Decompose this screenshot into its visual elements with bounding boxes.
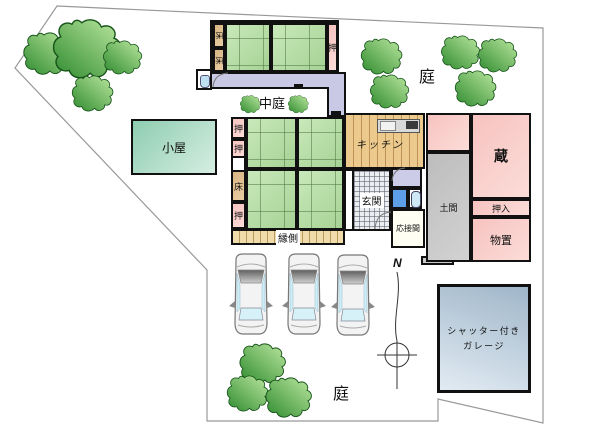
garage: シャッター付き ガレージ xyxy=(437,284,531,393)
tree-icon xyxy=(361,39,402,74)
annex-toko-cell: 床 xyxy=(213,48,225,72)
annex-closet-cell: 押 xyxy=(327,23,338,72)
tree-icon xyxy=(240,344,285,383)
bathtub-cell xyxy=(408,188,422,209)
side-cell-oshiire: 押 xyxy=(231,117,246,139)
tree-icon xyxy=(288,96,308,113)
oshiire-label: 押 xyxy=(234,209,243,222)
tree-icon xyxy=(54,20,121,78)
shed-label: 小屋 xyxy=(162,139,186,156)
oshiire-room: 押入 xyxy=(471,199,531,217)
tree-icon xyxy=(478,39,516,72)
annex-closet-label: 押 xyxy=(328,41,337,54)
shed-room: 小屋 xyxy=(131,119,217,175)
garden-label-top: 庭 xyxy=(419,69,435,87)
annex-toko-cell: 床 xyxy=(213,23,225,48)
tree-icon xyxy=(103,41,141,74)
kitchen-sink xyxy=(380,121,396,131)
tatami-room xyxy=(246,169,297,230)
tokonoma-label: 床 xyxy=(234,180,243,193)
side-cell-oshiire: 押 xyxy=(231,202,246,229)
reception-room: 応接間 xyxy=(391,209,425,248)
courtyard-label: 中庭 xyxy=(259,97,285,111)
tree-icon xyxy=(370,75,408,108)
tokonoma-cell: 床 xyxy=(231,170,246,202)
genkan-label: 玄関 xyxy=(360,193,384,208)
tree-icon xyxy=(240,96,260,113)
oshiire-room-label: 押入 xyxy=(492,202,510,215)
tatami-room xyxy=(297,117,344,169)
tree-icon xyxy=(72,76,113,111)
car-icon xyxy=(331,255,375,335)
tree-icon xyxy=(441,36,479,69)
tree-icon xyxy=(266,378,311,417)
tree-icon xyxy=(24,33,72,74)
tree-icon xyxy=(227,376,268,411)
east-cell xyxy=(426,113,471,152)
kura-room: 蔵 xyxy=(471,113,531,199)
oshiire-label: 押 xyxy=(234,122,243,135)
annex-tatami-room xyxy=(225,23,271,72)
monooki-label: 物置 xyxy=(490,232,512,248)
annex-toko-label: 床 xyxy=(214,32,225,40)
garage-label-line1: シャッター付き xyxy=(447,324,521,338)
car-icon xyxy=(282,254,326,334)
tatami-room xyxy=(297,169,344,230)
car-icon xyxy=(229,254,273,334)
bath-room xyxy=(391,188,408,209)
site-plan: 庭 中庭 庭 小屋 床 床 押 押 押 床 押 xyxy=(0,0,600,436)
bathtub-icon xyxy=(411,191,421,208)
washroom xyxy=(391,168,422,188)
engawa-label: 縁側 xyxy=(276,230,300,245)
toilet-room xyxy=(196,69,212,90)
compass-icon xyxy=(377,272,417,389)
tree-icon xyxy=(455,71,496,106)
garage-label-line2: ガレージ xyxy=(447,339,521,353)
kitchen-counter xyxy=(377,119,420,133)
tatami-room xyxy=(246,117,297,169)
toilet-icon xyxy=(200,75,210,88)
monooki-room: 物置 xyxy=(471,217,531,262)
oshiire-label: 押 xyxy=(234,142,243,155)
reception-label: 応接間 xyxy=(396,223,420,234)
annex-tatami-room xyxy=(271,23,327,72)
engawa: 縁側 xyxy=(231,229,345,245)
hallway xyxy=(204,72,346,89)
doma-area: 土間 xyxy=(426,152,471,262)
doma-label: 土間 xyxy=(439,201,457,214)
side-cell-gap xyxy=(231,158,246,170)
kitchen-label: キッチン xyxy=(356,140,404,151)
kitchen-room: キッチン xyxy=(344,113,425,169)
garden-label-bottom: 庭 xyxy=(333,386,349,404)
stove-icon xyxy=(406,121,418,129)
genkan-room: 玄関 xyxy=(352,169,391,231)
north-label: N xyxy=(393,257,402,270)
kura-label: 蔵 xyxy=(494,146,508,166)
annex-toko-label: 床 xyxy=(214,56,225,64)
side-cell-oshiire: 押 xyxy=(231,139,246,158)
